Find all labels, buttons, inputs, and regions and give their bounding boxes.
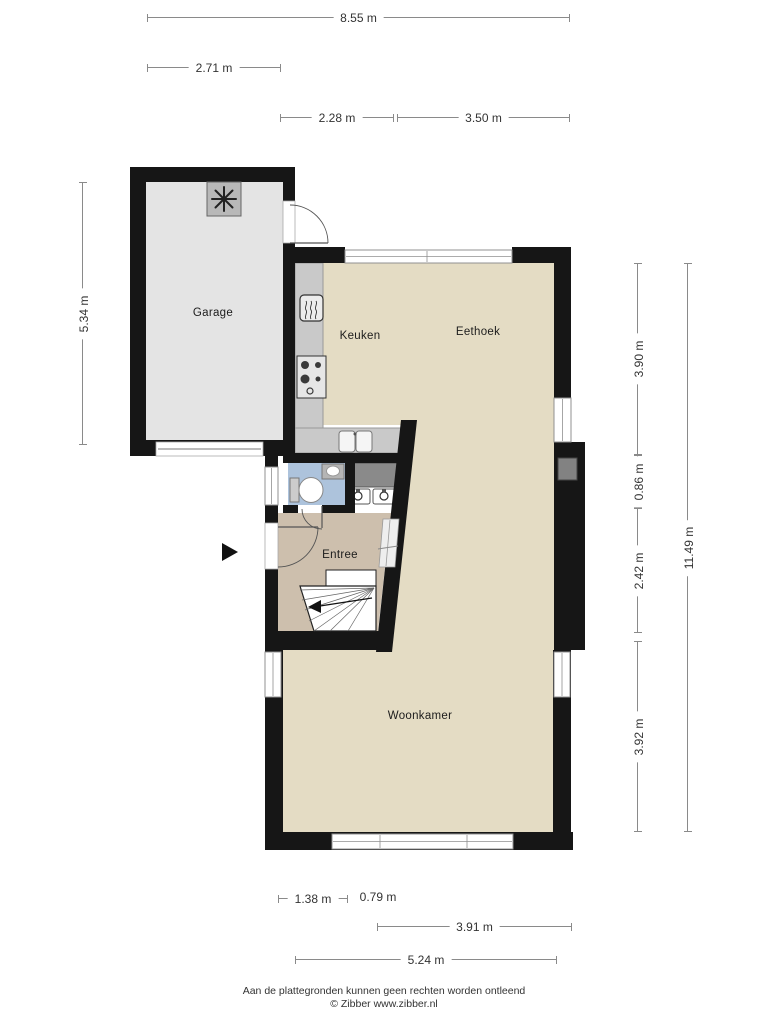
dim-middle-depth: 2.42 m xyxy=(637,508,638,633)
garage-wall-left xyxy=(130,167,146,455)
dim-bottom-138: 1.38 m xyxy=(278,898,348,899)
dim-bottom-524: 5.24 m xyxy=(295,959,557,960)
garage-side-door xyxy=(283,201,328,243)
window-south xyxy=(332,834,513,849)
garage-kitchen-wall xyxy=(283,243,295,455)
dim-eethoek-width: 3.50 m xyxy=(397,117,570,118)
stair-landing xyxy=(326,570,376,586)
entree-label: Entree xyxy=(322,549,358,561)
garage-wall-top xyxy=(130,167,295,182)
dim-garage-width: 2.71 m xyxy=(147,67,281,68)
dim-bumpout-depth: 0.86 m xyxy=(637,455,638,508)
dim-total-depth: 11.49 m xyxy=(687,263,688,832)
stove-icon xyxy=(297,356,326,398)
window-north xyxy=(345,250,512,263)
boiler-icon xyxy=(300,295,323,321)
heater-icon xyxy=(207,182,241,216)
woonkamer-label: Woonkamer xyxy=(388,710,452,722)
window-east-woonkamer xyxy=(554,652,570,697)
entrance-arrow-icon xyxy=(222,543,238,561)
window-east-eethoek xyxy=(554,398,571,442)
kitchen-hall-wall xyxy=(283,453,408,463)
eethoek-label: Eethoek xyxy=(456,326,500,338)
dim-keuken-width: 2.28 m xyxy=(280,117,394,118)
north-wall-left xyxy=(283,247,345,263)
garage-wall-right-upper xyxy=(283,182,295,201)
dim-bottom-079: 0.79 m xyxy=(360,890,397,904)
west-wall-hall-lower xyxy=(265,567,278,631)
duct-shaft xyxy=(558,458,577,480)
dim-garage-depth: 5.34 m xyxy=(82,182,83,445)
window-west-hall xyxy=(265,467,278,505)
disclaimer-text: Aan de plattegronden kunnen geen rechten… xyxy=(0,985,768,998)
floorplan-drawing xyxy=(0,0,768,1024)
toilet-basin-icon xyxy=(322,464,344,479)
dim-bottom-391: 3.91 m xyxy=(377,926,572,927)
stair-bottom-wall xyxy=(283,631,390,650)
toilet-right-wall xyxy=(345,463,355,508)
garage-door-opening xyxy=(156,442,263,456)
floorplan-page: Garage Keuken Eethoek Entree Woonkamer 8… xyxy=(0,0,768,1024)
toilet-icon xyxy=(290,478,323,503)
dim-woonkamer-depth: 3.92 m xyxy=(637,641,638,832)
disclaimer-footer: Aan de plattegronden kunnen geen rechten… xyxy=(0,985,768,1011)
kitchen-sink-icon xyxy=(339,431,372,452)
keuken-label: Keuken xyxy=(340,330,381,342)
copyright-text: © Zibber www.zibber.nl xyxy=(0,998,768,1011)
window-west-woonkamer xyxy=(265,652,281,697)
dim-eethoek-depth: 3.90 m xyxy=(637,263,638,455)
garage-label: Garage xyxy=(193,307,233,319)
dim-total-width: 8.55 m xyxy=(147,17,570,18)
east-wall-eethoek xyxy=(554,250,571,398)
